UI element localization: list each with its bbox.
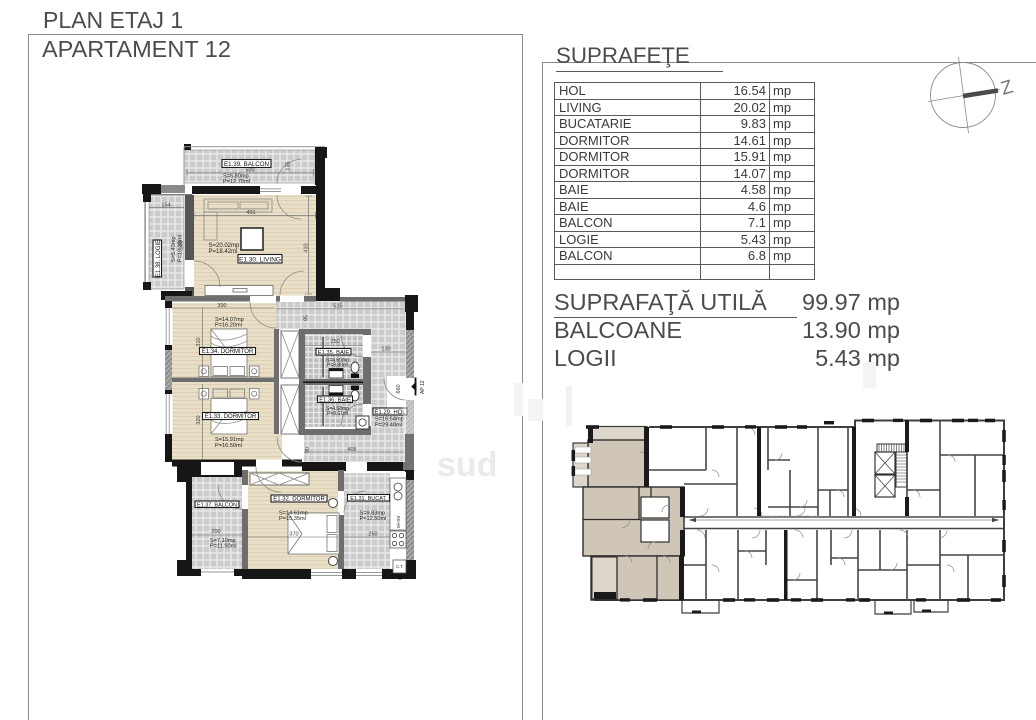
svg-text:130: 130 (381, 347, 390, 353)
svg-text:E1.35. BAIE: E1.35. BAIE (318, 350, 350, 356)
svg-text:135: 135 (286, 161, 292, 170)
svg-text:S=5.43mp: S=5.43mp (171, 236, 177, 262)
svg-text:M+SV: M+SV (396, 516, 401, 528)
svg-text:660: 660 (396, 384, 402, 393)
svg-text:E1.39. BALCON: E1.39. BALCON (224, 161, 269, 168)
svg-text:E1.38. LOGIE: E1.38. LOGIE (156, 240, 162, 277)
svg-text:E1.36. BAIE: E1.36. BAIE (319, 397, 351, 403)
svg-text:P=16.20ml: P=16.20ml (215, 323, 242, 329)
svg-text:Z: Z (999, 76, 1016, 99)
svg-text:E1.31. BUCAT.: E1.31. BUCAT. (350, 496, 387, 502)
svg-text:P=16.50ml: P=16.50ml (215, 443, 242, 449)
svg-text:90: 90 (305, 447, 311, 453)
svg-text:410: 410 (303, 243, 309, 252)
svg-text:250: 250 (330, 339, 339, 345)
svg-text:C.T.: C.T. (396, 564, 403, 569)
svg-text:200: 200 (211, 529, 220, 535)
svg-text:P=8.80ml: P=8.80ml (327, 363, 348, 369)
svg-text:P=18.42ml: P=18.42ml (209, 249, 238, 255)
svg-text:E1.33. DORMITOR: E1.33. DORMITOR (205, 414, 257, 420)
svg-text:95: 95 (304, 315, 310, 321)
svg-text:491: 491 (246, 210, 255, 216)
svg-text:E1.29. HOL: E1.29. HOL (374, 410, 406, 416)
svg-text:P=11.90ml: P=11.90ml (210, 544, 236, 550)
svg-text:sud: sud (437, 446, 497, 484)
svg-text:E1.37. BALCON: E1.37. BALCON (197, 502, 237, 508)
svg-text:P=8.61ml: P=8.61ml (327, 411, 348, 417)
svg-text:390: 390 (217, 303, 226, 309)
svg-text:P=15.35ml: P=15.35ml (279, 516, 306, 522)
svg-text:405: 405 (347, 447, 356, 453)
svg-text:370: 370 (289, 531, 298, 537)
svg-text:250: 250 (368, 531, 377, 537)
svg-text:154: 154 (161, 202, 170, 208)
svg-text:SUPRAFATA CIRCULATII COMUNE: SUPRAFATA CIRCULATII COMUNE (762, 515, 821, 519)
svg-text:P=10.28ml: P=10.28ml (178, 235, 184, 262)
svg-text:AP 12: AP 12 (420, 380, 426, 394)
svg-text:E1.34. DORMITOR: E1.34. DORMITOR (202, 349, 254, 355)
svg-text:320: 320 (196, 415, 202, 424)
svg-text:E1.32. DORMITOR: E1.32. DORMITOR (273, 497, 325, 503)
svg-text:P=29.40ml: P=29.40ml (375, 423, 402, 429)
svg-text:515: 515 (333, 304, 342, 310)
svg-text:P=12.70ml: P=12.70ml (223, 179, 250, 185)
svg-text:E1.30. LIVING: E1.30. LIVING (239, 256, 281, 263)
svg-text:P=12.50ml: P=12.50ml (360, 516, 387, 522)
svg-text:310: 310 (196, 337, 202, 346)
